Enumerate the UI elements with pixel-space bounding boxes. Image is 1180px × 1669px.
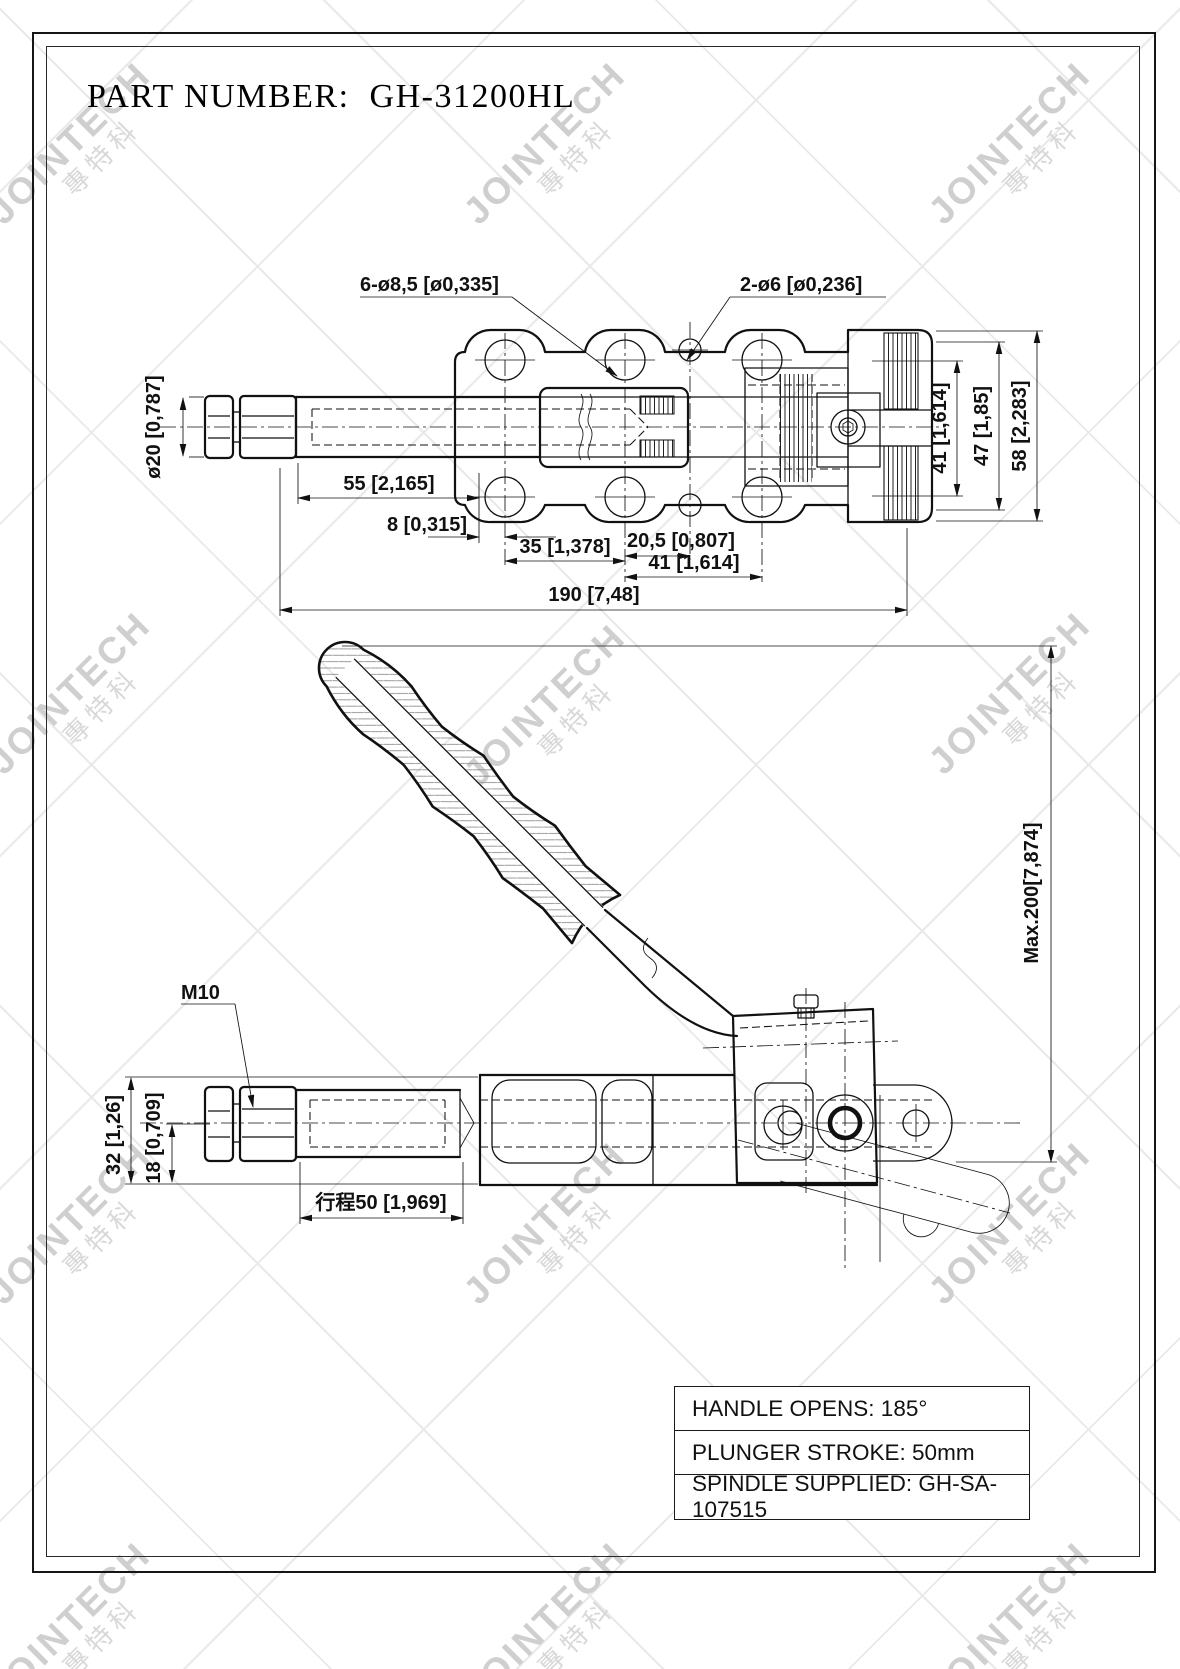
- page-title: PART NUMBER: GH-31200HL: [87, 78, 575, 116]
- dim-8: 8 [0,315]: [387, 514, 467, 536]
- spec-spindle-supplied: SPINDLE SUPPLIED: GH-SA-107515: [692, 1471, 1029, 1523]
- spec-row-handle-opens: HANDLE OPENS: 185°: [675, 1387, 1029, 1431]
- drawing-sheet: JOINTECH專特科 JOINTECH專特科 JOINTECH專特科 JOIN…: [0, 0, 1180, 1669]
- dim-41-bottom: 41 [1,614]: [648, 552, 739, 574]
- spec-row-plunger-stroke: PLUNGER STROKE: 50mm: [675, 1431, 1029, 1475]
- dim-190: 190 [7,48]: [548, 584, 639, 606]
- dim-18: 18 [0,709]: [143, 1092, 165, 1183]
- alternate-position-outline: [776, 1123, 1016, 1257]
- dim-58: 58 [2,283]: [1009, 380, 1031, 471]
- dim-20-5: 20,5 [0,807]: [627, 530, 735, 552]
- side-view: [140, 623, 1020, 1268]
- dim-55: 55 [2,165]: [343, 473, 434, 495]
- spec-table: HANDLE OPENS: 185° PLUNGER STROKE: 50mm …: [674, 1386, 1030, 1520]
- dim-47: 47 [1,85]: [971, 386, 993, 466]
- spec-row-spindle-supplied: SPINDLE SUPPLIED: GH-SA-107515: [675, 1475, 1029, 1519]
- callout-thread: M10: [181, 982, 220, 1004]
- callout-large-holes: 6-ø8,5 [ø0,335]: [360, 274, 499, 296]
- dim-41-right: 41 [1,614]: [929, 382, 951, 473]
- dim-spindle-dia: ø20 [0,787]: [143, 375, 165, 478]
- spec-handle-opens: HANDLE OPENS: 185°: [692, 1396, 927, 1422]
- dim-max-open: Max.200[7,874]: [1021, 822, 1043, 963]
- dim-stroke: 行程50 [1,969]: [314, 1190, 446, 1214]
- callout-small-holes: 2-ø6 [ø0,236]: [740, 274, 862, 296]
- handle-grip: [300, 623, 622, 945]
- spec-plunger-stroke: PLUNGER STROKE: 50mm: [692, 1440, 975, 1466]
- dim-32: 32 [1,26]: [103, 1095, 125, 1175]
- dim-35: 35 [1,378]: [519, 536, 610, 558]
